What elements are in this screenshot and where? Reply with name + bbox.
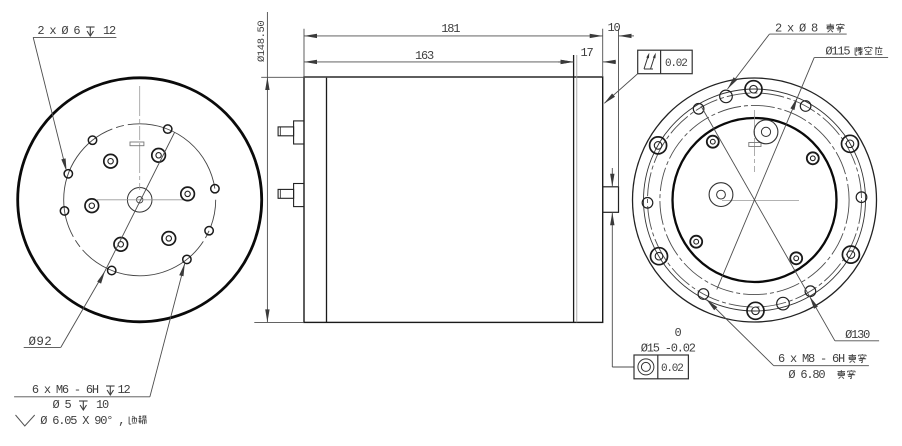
svg-text:12: 12 [103, 24, 116, 38]
svg-text:0: 0 [675, 326, 682, 340]
svg-text:Ø 5: Ø 5 [53, 398, 72, 412]
svg-text:2 x Ø 8: 2 x Ø 8 [775, 22, 818, 36]
svg-text:10: 10 [96, 398, 109, 412]
svg-text:Ø148.50: Ø148.50 [256, 21, 268, 62]
svg-text:163: 163 [415, 49, 434, 63]
svg-text:2 x Ø 6: 2 x Ø 6 [37, 24, 80, 38]
svg-text:10: 10 [608, 21, 621, 35]
svg-text:0.02: 0.02 [665, 58, 687, 70]
svg-text:181: 181 [441, 22, 460, 36]
svg-text:Ø 6.05 X 90° ,: Ø 6.05 X 90° , [40, 414, 124, 428]
svg-text:6 x M6 - 6H: 6 x M6 - 6H [32, 383, 99, 397]
svg-text:Ø130: Ø130 [845, 328, 870, 342]
svg-text:Ø 6.80: Ø 6.80 [788, 368, 825, 382]
svg-text:Ø15 -0.02: Ø15 -0.02 [641, 342, 696, 356]
svg-text:12: 12 [118, 383, 131, 397]
svg-text:0.02: 0.02 [661, 363, 683, 375]
svg-text:Ø115: Ø115 [825, 45, 850, 59]
svg-text:17: 17 [581, 46, 594, 60]
svg-text:6 x M8 - 6H: 6 x M8 - 6H [778, 352, 845, 366]
svg-text:Ø92: Ø92 [29, 335, 53, 349]
